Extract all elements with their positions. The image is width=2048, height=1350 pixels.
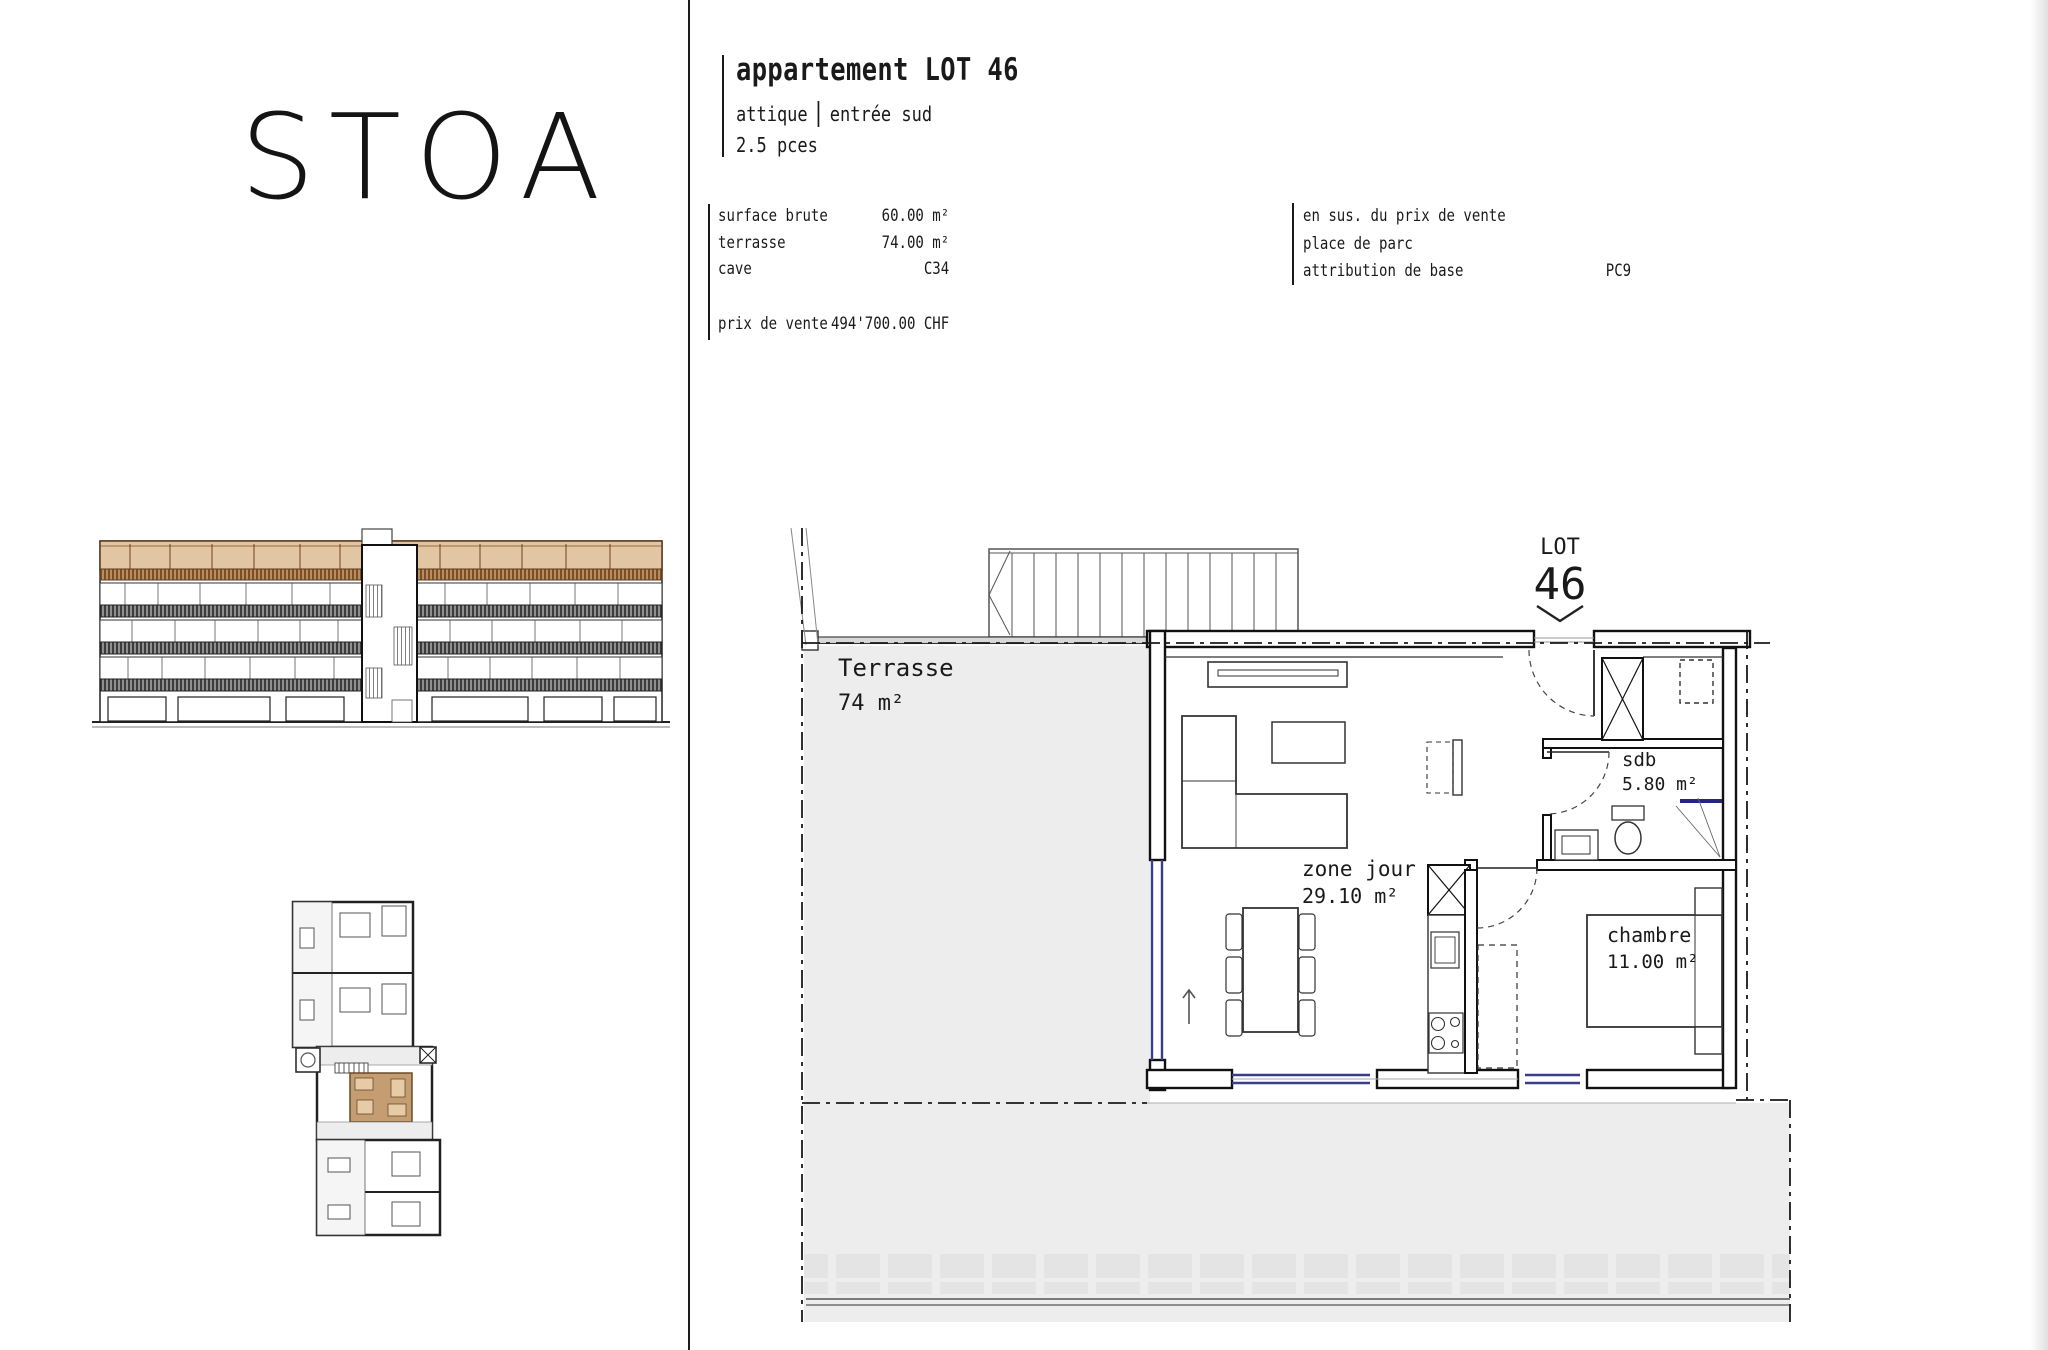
brochure-page: STOA appartement LOT 46 attique entrée s… <box>0 0 2048 1350</box>
sdb-area-label: 5.80 m² <box>1622 774 1698 795</box>
mini-floor-overview <box>285 895 450 1250</box>
mini-bottom-block <box>317 1140 440 1235</box>
spec-value: 60.00 m² <box>882 203 950 230</box>
extras-item: place de parc <box>1303 230 1413 258</box>
price-label: prix de vente <box>718 311 828 338</box>
toilet <box>1612 806 1644 854</box>
lot-callout: LOT 46 <box>1534 535 1587 621</box>
price-row: prix de vente 494'700.00 CHF <box>718 311 949 338</box>
shaft-entrance <box>1602 658 1643 740</box>
extras-rule <box>1292 203 1294 285</box>
attribution-label: attribution de base <box>1303 257 1463 285</box>
lot-tag: LOT <box>1540 535 1580 560</box>
shaft-kitchen <box>1428 865 1470 915</box>
lot-number: 46 <box>1534 559 1587 610</box>
chambre-label: chambre <box>1607 923 1691 947</box>
specs-rule <box>708 204 710 340</box>
entrance-door <box>1529 638 1594 716</box>
apartment-title: appartement LOT 46 <box>736 52 1019 88</box>
apartment-subtitle: attique entrée sud <box>736 101 932 127</box>
building-elevation <box>88 524 678 730</box>
vertical-divider <box>688 0 690 1350</box>
cooktop <box>1429 1013 1463 1053</box>
extras-attribution-row: attribution de base PC9 <box>1303 257 1631 285</box>
subtitle-separator <box>818 101 820 127</box>
cupboard <box>1427 740 1462 795</box>
washer-column <box>1680 660 1713 703</box>
extras-table: en sus. du prix de vente place de parc a… <box>1303 202 1631 285</box>
sdb-door <box>1547 752 1609 814</box>
spec-value: C34 <box>924 256 949 283</box>
spec-label: cave <box>718 256 752 283</box>
sdb-label: sdb <box>1622 749 1656 771</box>
living-furniture <box>1182 662 1462 1036</box>
mini-highlight-unit <box>350 1073 412 1122</box>
floor-label: attique <box>736 102 808 126</box>
coffee-table <box>1272 722 1345 763</box>
mini-stair-hatch <box>335 1063 368 1073</box>
wardrobe <box>1478 945 1517 1068</box>
sideboard <box>1208 662 1347 687</box>
spec-value: 74.00 m² <box>882 230 950 257</box>
extras-title: en sus. du prix de vente <box>1303 202 1506 230</box>
spec-label: terrasse <box>718 230 786 257</box>
terrasse-area-label: 74 m² <box>838 691 904 716</box>
elevation-stair-tower <box>362 529 417 722</box>
terrasse-label: Terrasse <box>838 654 954 682</box>
mini-middle-block <box>296 1047 436 1140</box>
nightstand <box>1695 888 1722 915</box>
price-value: 494'700.00 CHF <box>831 311 949 338</box>
zone-jour-area-label: 29.10 m² <box>1302 884 1398 908</box>
floor-plan: Terrasse 74 m² zone jour 29.10 m² sdb 5.… <box>780 520 1810 1350</box>
chambre-area-label: 11.00 m² <box>1607 951 1699 973</box>
entrance-label: entrée sud <box>830 102 932 126</box>
kitchen-sink <box>1431 932 1459 968</box>
spec-label: surface brute <box>718 203 828 230</box>
nightstand <box>1695 1027 1722 1054</box>
shower-marks <box>1676 798 1720 857</box>
spec-row-terrasse: terrasse 74.00 m² <box>718 230 949 257</box>
extras-title-row: en sus. du prix de vente <box>1303 202 1631 230</box>
specs-table: surface brute 60.00 m² terrasse 74.00 m²… <box>718 203 949 337</box>
north-arrow <box>1183 990 1195 1024</box>
spec-row-surface: surface brute 60.00 m² <box>718 203 949 230</box>
dining-set <box>1226 908 1315 1036</box>
pergola <box>989 549 1298 637</box>
washbasin <box>1555 830 1598 860</box>
chambre-door <box>1477 868 1537 928</box>
rooms-count: 2.5 pces <box>736 133 818 157</box>
title-rule <box>722 55 724 157</box>
attribution-value: PC9 <box>1606 257 1631 285</box>
terrace-tile-strip <box>804 1254 1790 1294</box>
spec-row-cave: cave C34 <box>718 256 949 283</box>
extras-item-row: place de parc <box>1303 230 1631 258</box>
elevation-body <box>100 529 662 722</box>
mini-top-block <box>293 902 413 1047</box>
page-edge-shadow <box>2030 0 2048 1350</box>
bedroom-furniture <box>1478 888 1722 1068</box>
zone-jour-label: zone jour <box>1302 857 1416 881</box>
stoa-logo: STOA <box>240 98 615 216</box>
